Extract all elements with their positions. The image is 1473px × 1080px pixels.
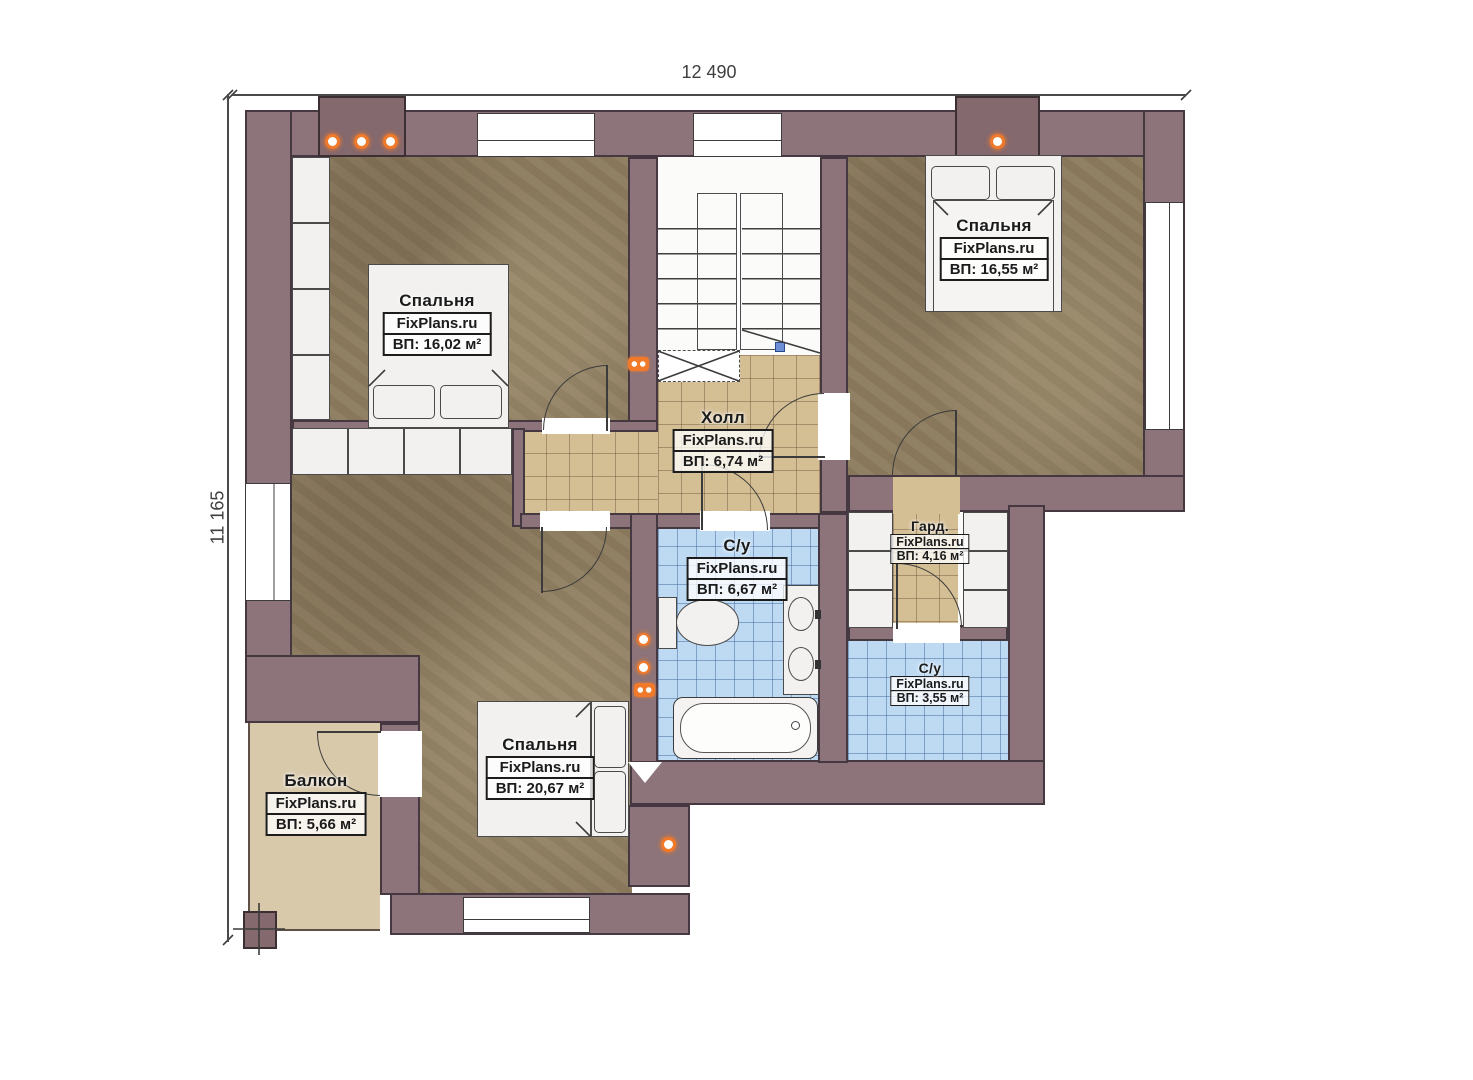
closet: [348, 428, 404, 475]
wall-jut-block: [628, 805, 690, 887]
toilet-tank: [658, 597, 677, 649]
room-area: ВП: 20,67 м²: [486, 777, 595, 800]
wardrobe-shelf: [963, 551, 1008, 590]
dimension-label-top: 12 490: [232, 62, 1186, 83]
room-name: Балкон: [266, 771, 367, 791]
room-name: С/у: [890, 660, 969, 676]
ceiling-light-icon: [325, 134, 340, 149]
door-leaf: [701, 464, 703, 530]
room-label-bedroom-bottom: Спальня FixPlans.ru ВП: 20,67 м²: [486, 735, 595, 800]
floor-plan: 12 490 11 165 Спальня FixPlans.ru ВП: 16…: [0, 0, 1473, 1080]
wall-balcony-top: [245, 655, 420, 723]
pillow: [931, 166, 990, 200]
stair-flight-divider: [736, 193, 741, 350]
switch-icon: [634, 683, 655, 697]
door-opening-bedroom-tr-wardrobe: [893, 477, 960, 514]
ceiling-light-icon: [354, 134, 369, 149]
room-area: ВП: 3,55 м²: [890, 690, 969, 706]
closet: [460, 428, 512, 475]
closet: [404, 428, 460, 475]
sink: [788, 597, 814, 631]
window-top-left: [477, 113, 595, 157]
window-right: [1145, 202, 1184, 430]
brand-label: FixPlans.ru: [687, 557, 788, 580]
room-name: Спальня: [486, 735, 595, 755]
door-leaf: [896, 563, 898, 629]
wall-light-icon: [637, 633, 650, 646]
room-name: Спальня: [383, 291, 492, 311]
room-label-balcony: Балкон FixPlans.ru ВП: 5,66 м²: [266, 771, 367, 836]
closet: [292, 428, 348, 475]
brand-label: FixPlans.ru: [266, 792, 367, 815]
door-leaf: [317, 731, 381, 733]
wardrobe-shelf: [848, 551, 893, 590]
room-area: ВП: 16,55 м²: [940, 258, 1049, 281]
room-label-wardrobe: Гард. FixPlans.ru ВП: 4,16 м²: [890, 518, 969, 564]
brand-label: FixPlans.ru: [673, 429, 774, 452]
room-name: Спальня: [940, 216, 1049, 236]
wardrobe-shelf: [963, 590, 1008, 628]
white-triangle-marker: [628, 762, 662, 783]
pillow: [594, 706, 626, 768]
pillow: [373, 385, 435, 419]
room-area: ВП: 6,74 м²: [673, 450, 774, 473]
sink: [788, 647, 814, 681]
wardrobe-shelf: [848, 590, 893, 628]
faucet: [815, 610, 821, 619]
toilet-bowl: [676, 599, 739, 646]
pillow: [996, 166, 1055, 200]
stair-cut-mark: [658, 350, 740, 382]
room-label-bathroom-main: С/у FixPlans.ru ВП: 6,67 м²: [687, 536, 788, 601]
dimension-label-left: 11 165: [208, 482, 229, 554]
room-name: Холл: [673, 408, 774, 428]
pillow: [440, 385, 502, 419]
brand-label: FixPlans.ru: [890, 676, 969, 692]
closet: [292, 157, 330, 223]
window-left: [245, 483, 291, 601]
door-opening-balcony: [378, 731, 422, 797]
balcony-column: [243, 911, 277, 949]
bathtub-drain: [791, 721, 800, 730]
pillow: [594, 771, 626, 833]
room-area: ВП: 5,66 м²: [266, 813, 367, 836]
wall-stair-left: [628, 157, 658, 432]
brand-label: FixPlans.ru: [890, 534, 969, 550]
switch-icon: [628, 357, 649, 371]
room-label-bedroom-top-right: Спальня FixPlans.ru ВП: 16,55 м²: [940, 216, 1049, 281]
faucet: [815, 660, 821, 669]
dimension-line-top: [232, 94, 1186, 96]
window-bottom: [463, 897, 590, 933]
room-area: ВП: 6,67 м²: [687, 578, 788, 601]
ceiling-light-icon: [661, 837, 676, 852]
closet: [292, 289, 330, 355]
room-label-bedroom-top-left: Спальня FixPlans.ru ВП: 16,02 м²: [383, 291, 492, 356]
room-area: ВП: 16,02 м²: [383, 333, 492, 356]
brand-label: FixPlans.ru: [383, 312, 492, 335]
ceiling-light-icon: [383, 134, 398, 149]
wall-light-icon: [637, 661, 650, 674]
wardrobe-shelf: [848, 512, 893, 551]
room-label-bathroom-small: С/у FixPlans.ru ВП: 3,55 м²: [890, 660, 969, 706]
floor-hall-corridor: [523, 430, 658, 515]
closet: [292, 223, 330, 289]
door-leaf: [541, 527, 543, 593]
closet: [292, 355, 330, 420]
wardrobe-shelf: [963, 512, 1008, 551]
ceiling-light-icon: [990, 134, 1005, 149]
brand-label: FixPlans.ru: [486, 756, 595, 779]
room-area: ВП: 4,16 м²: [890, 548, 969, 564]
room-name: Гард.: [890, 518, 969, 534]
room-name: С/у: [687, 536, 788, 556]
wall-bottom-right: [630, 760, 1045, 805]
stair-node-marker: [775, 342, 785, 352]
door-leaf: [955, 410, 957, 476]
room-label-hall: Холл FixPlans.ru ВП: 6,74 м²: [673, 408, 774, 473]
door-leaf: [606, 365, 608, 431]
window-top-center: [693, 113, 782, 157]
wall-bathroom-right: [818, 513, 848, 763]
brand-label: FixPlans.ru: [940, 237, 1049, 260]
